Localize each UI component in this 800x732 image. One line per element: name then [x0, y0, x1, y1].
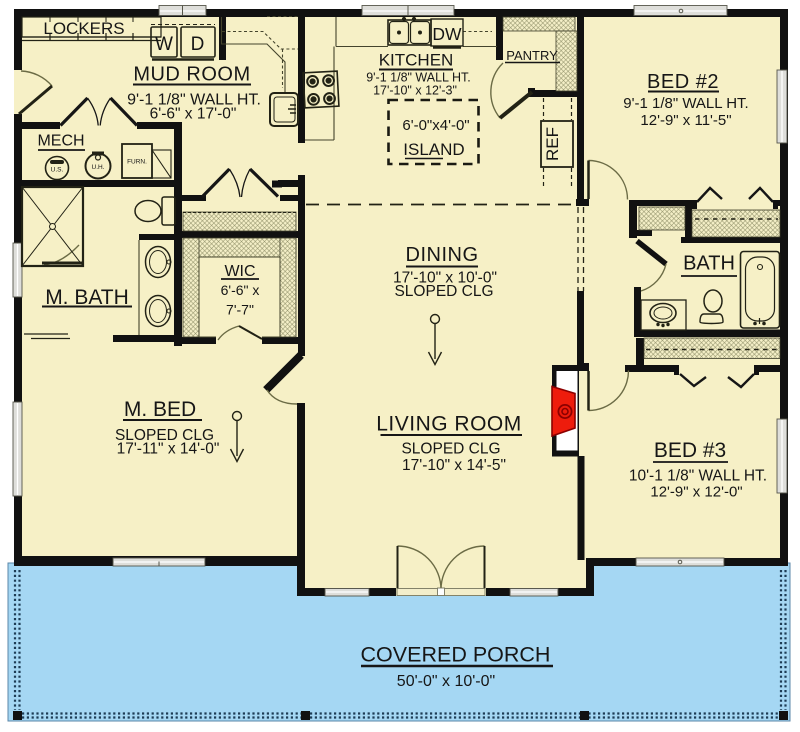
svg-text:7'-7": 7'-7" [226, 302, 254, 318]
svg-text:17'-10" x 14'-5": 17'-10" x 14'-5" [402, 457, 506, 474]
svg-text:LIVING ROOM: LIVING ROOM [376, 413, 522, 436]
svg-text:U.S.: U.S. [51, 167, 64, 174]
svg-text:17'-11" x 14'-0": 17'-11" x 14'-0" [117, 441, 220, 458]
svg-text:REF: REF [543, 127, 562, 161]
svg-text:6'-6" x 17'-0": 6'-6" x 17'-0" [150, 106, 237, 123]
svg-text:9'-1 1/8" WALL HT.: 9'-1 1/8" WALL HT. [623, 95, 748, 112]
svg-text:50'-0" x 10'-0": 50'-0" x 10'-0" [397, 673, 495, 690]
svg-text:D: D [191, 34, 205, 55]
svg-text:MECH: MECH [37, 133, 84, 150]
svg-text:BATH: BATH [683, 253, 735, 275]
svg-text:M. BED: M. BED [124, 398, 196, 421]
svg-text:9'-1 1/8" WALL HT.: 9'-1 1/8" WALL HT. [366, 71, 471, 85]
svg-text:17'-10" x 12'-3": 17'-10" x 12'-3" [373, 84, 457, 98]
svg-text:DW: DW [432, 24, 462, 44]
svg-text:LOCKERS: LOCKERS [43, 19, 124, 38]
svg-text:SLOPED CLG: SLOPED CLG [394, 283, 493, 300]
svg-text:ISLAND: ISLAND [403, 140, 464, 159]
svg-text:WIC: WIC [224, 263, 255, 280]
svg-text:BED #2: BED #2 [647, 71, 719, 93]
svg-text:12'-9" x 12'-0": 12'-9" x 12'-0" [650, 484, 742, 501]
svg-text:W: W [155, 34, 173, 55]
svg-text:KITCHEN: KITCHEN [379, 51, 454, 70]
svg-text:12'-9" x 11'-5": 12'-9" x 11'-5" [640, 112, 731, 129]
svg-text:PANTRY: PANTRY [506, 48, 558, 63]
svg-text:MUD ROOM: MUD ROOM [133, 64, 250, 86]
svg-text:FURN.: FURN. [127, 159, 147, 166]
svg-text:6'-0"x4'-0": 6'-0"x4'-0" [402, 117, 469, 134]
svg-text:10'-1 1/8" WALL HT.: 10'-1 1/8" WALL HT. [629, 468, 767, 485]
svg-text:SLOPED CLG: SLOPED CLG [401, 441, 500, 458]
svg-text:DINING: DINING [406, 244, 479, 266]
svg-text:COVERED PORCH: COVERED PORCH [361, 643, 551, 667]
svg-text:BED #3: BED #3 [654, 439, 726, 462]
svg-text:6'-6" x: 6'-6" x [221, 282, 260, 298]
svg-text:U.H.: U.H. [92, 164, 105, 171]
